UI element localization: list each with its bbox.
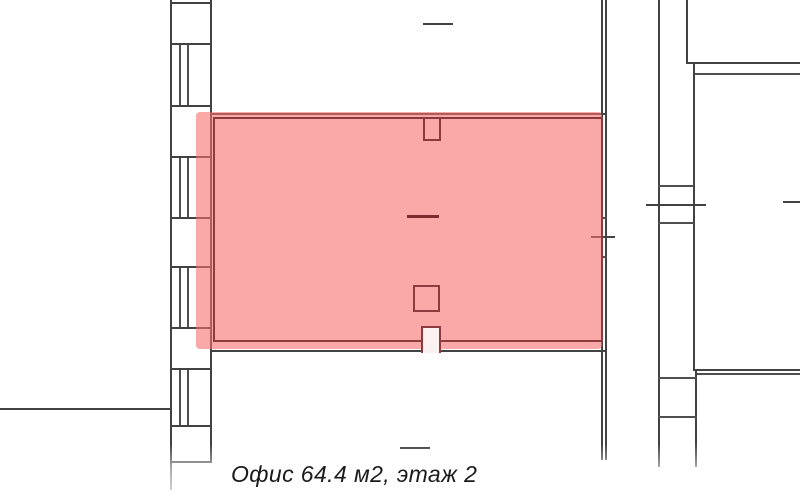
right-wall-outer-line (605, 0, 607, 460)
right-wing-axis-tick (646, 204, 706, 206)
right-wing-top-wall-inner (693, 73, 800, 75)
office-center-dash (407, 215, 439, 218)
left-wall-division (170, 43, 212, 45)
office-highlight-border (213, 117, 603, 342)
left-axis-tick-line (0, 408, 170, 410)
window-glazing-line (187, 158, 189, 217)
window-glazing-line (179, 158, 181, 217)
right-wing-rung (658, 222, 694, 224)
right-wing-wall-v2 (686, 0, 688, 63)
right-wing-mid-wall-inner (695, 373, 800, 375)
office-column-square (413, 285, 440, 312)
floor-plan-canvas: Офис 64.4 м2, этаж 2 (0, 0, 800, 497)
office-bottom-door-stub (421, 326, 441, 353)
right-wing-top-wall (686, 62, 800, 64)
right-wing-rung (658, 377, 697, 379)
office-bottom-wall-right (441, 350, 606, 352)
window-glazing-line (179, 268, 181, 327)
upper-room-door-dash (423, 23, 453, 25)
left-wall-division (170, 2, 212, 4)
left-wall-division (170, 461, 212, 463)
office-bottom-wall-left (211, 350, 422, 352)
window-glazing-line (187, 370, 189, 425)
right-wing-wall-v1 (658, 0, 660, 467)
right-wing-mid-wall (693, 369, 800, 371)
left-wall-division (170, 105, 212, 107)
window-glazing-line (179, 45, 181, 105)
window-glazing-line (179, 370, 181, 425)
plan-caption: Офис 64.4 м2, этаж 2 (231, 461, 477, 488)
office-top-door-stub (423, 117, 441, 141)
right-wing-wall-v4 (695, 369, 697, 467)
right-edge-axis-dash (783, 201, 800, 203)
right-wing-rung (658, 185, 694, 187)
window-glazing-line (187, 268, 189, 327)
right-wing-wall-v3 (693, 62, 695, 370)
left-wall-outer-edge (170, 0, 172, 490)
right-wing-rung (658, 416, 697, 418)
lower-room-door-dash (400, 447, 430, 449)
left-wall-division (170, 368, 212, 370)
left-wall-division (170, 425, 212, 427)
window-glazing-line (187, 45, 189, 105)
